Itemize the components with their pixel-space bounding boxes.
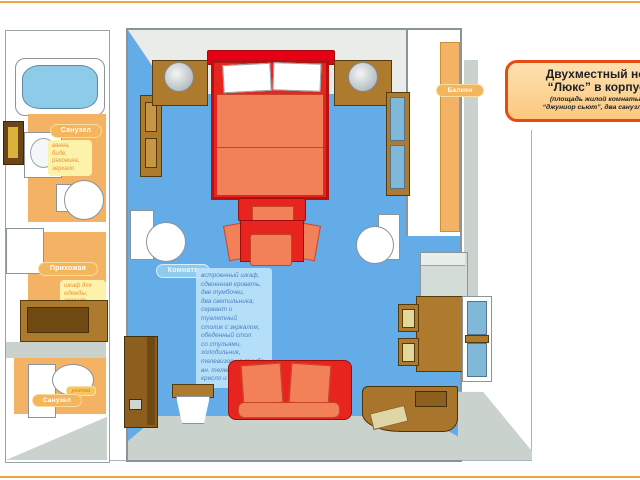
window-upper xyxy=(386,92,410,196)
dining-chair-2 xyxy=(398,338,419,366)
bottom-divider xyxy=(0,476,640,478)
bathtub-basin xyxy=(22,65,98,109)
fridge-cabinet xyxy=(124,336,158,428)
lamp-left xyxy=(164,62,194,92)
hallway-floor-strip xyxy=(6,342,106,358)
bed-pillow-right xyxy=(273,62,322,92)
door-left-leaf xyxy=(146,222,186,262)
top-divider xyxy=(0,1,640,3)
luggage-bench-inner xyxy=(27,307,89,333)
tv-stand xyxy=(172,384,214,398)
mirror xyxy=(3,121,24,165)
dining-chair-1 xyxy=(398,304,419,332)
title-line-2: “Люкс” в корпусе xyxy=(508,81,640,94)
lamp-right xyxy=(348,62,378,92)
armchair-seat-cushion xyxy=(250,234,292,266)
room-left-door-pane2 xyxy=(145,138,157,168)
toilet-top-bowl xyxy=(64,180,104,220)
outside-corner-floor xyxy=(458,386,532,460)
sofa-back-cushion-left xyxy=(241,363,284,406)
luggage-bench xyxy=(20,300,108,342)
sofa-back-cushion-right xyxy=(289,363,332,406)
balcony-floor xyxy=(440,42,460,232)
bed-blanket-seam xyxy=(217,147,323,148)
fridge-panel xyxy=(129,399,142,410)
balcony-label: Балкон xyxy=(436,84,484,97)
desk-shelf xyxy=(415,391,447,407)
bed-blanket xyxy=(217,94,323,195)
bathroom-bottom-label: Санузел xyxy=(32,394,82,407)
toilet-bottom-tank xyxy=(28,364,56,418)
fridge-side-shade xyxy=(147,337,155,425)
window-lower xyxy=(462,296,492,382)
mirror-glass xyxy=(8,127,18,158)
title-line-4: “джуниор сьют”, два санузла, од xyxy=(508,104,640,112)
floorplan-page: Санузел ванна, биде, раковина, зеркало П… xyxy=(0,0,640,480)
sofa xyxy=(228,358,350,420)
bathtub xyxy=(15,58,105,116)
bed xyxy=(205,50,335,202)
window-lower-pane1 xyxy=(467,301,487,335)
writing-desk xyxy=(362,386,458,432)
sideboard-top-face xyxy=(421,253,465,266)
bathroom-top-note: ванна, биде, раковина, зеркало xyxy=(48,140,92,176)
desk-pad xyxy=(369,405,408,430)
dining-table xyxy=(416,296,466,372)
bathroom-top-label: Санузел xyxy=(50,124,102,138)
bed-pillow-left xyxy=(222,63,271,93)
window-lower-pane2 xyxy=(467,343,487,377)
window-upper-pane1 xyxy=(390,97,405,141)
hallway-label: Прихожая xyxy=(38,262,98,276)
room-left-door-pane xyxy=(145,102,157,132)
door-right-leaf xyxy=(356,226,394,264)
window-lower-sill xyxy=(465,335,489,343)
plan-right-border xyxy=(531,130,532,461)
sofa-seat xyxy=(238,402,340,418)
armchair xyxy=(224,196,318,266)
room-left-door xyxy=(140,95,162,177)
window-upper-pane2 xyxy=(390,145,405,189)
title-box: Двухместный ном “Люкс” в корпусе (площад… xyxy=(505,60,640,122)
dining-chair-2-seat xyxy=(402,343,415,362)
title-line-3: (площадь жилой комнаты 30 xyxy=(508,96,640,104)
dining-chair-1-seat xyxy=(402,309,415,328)
